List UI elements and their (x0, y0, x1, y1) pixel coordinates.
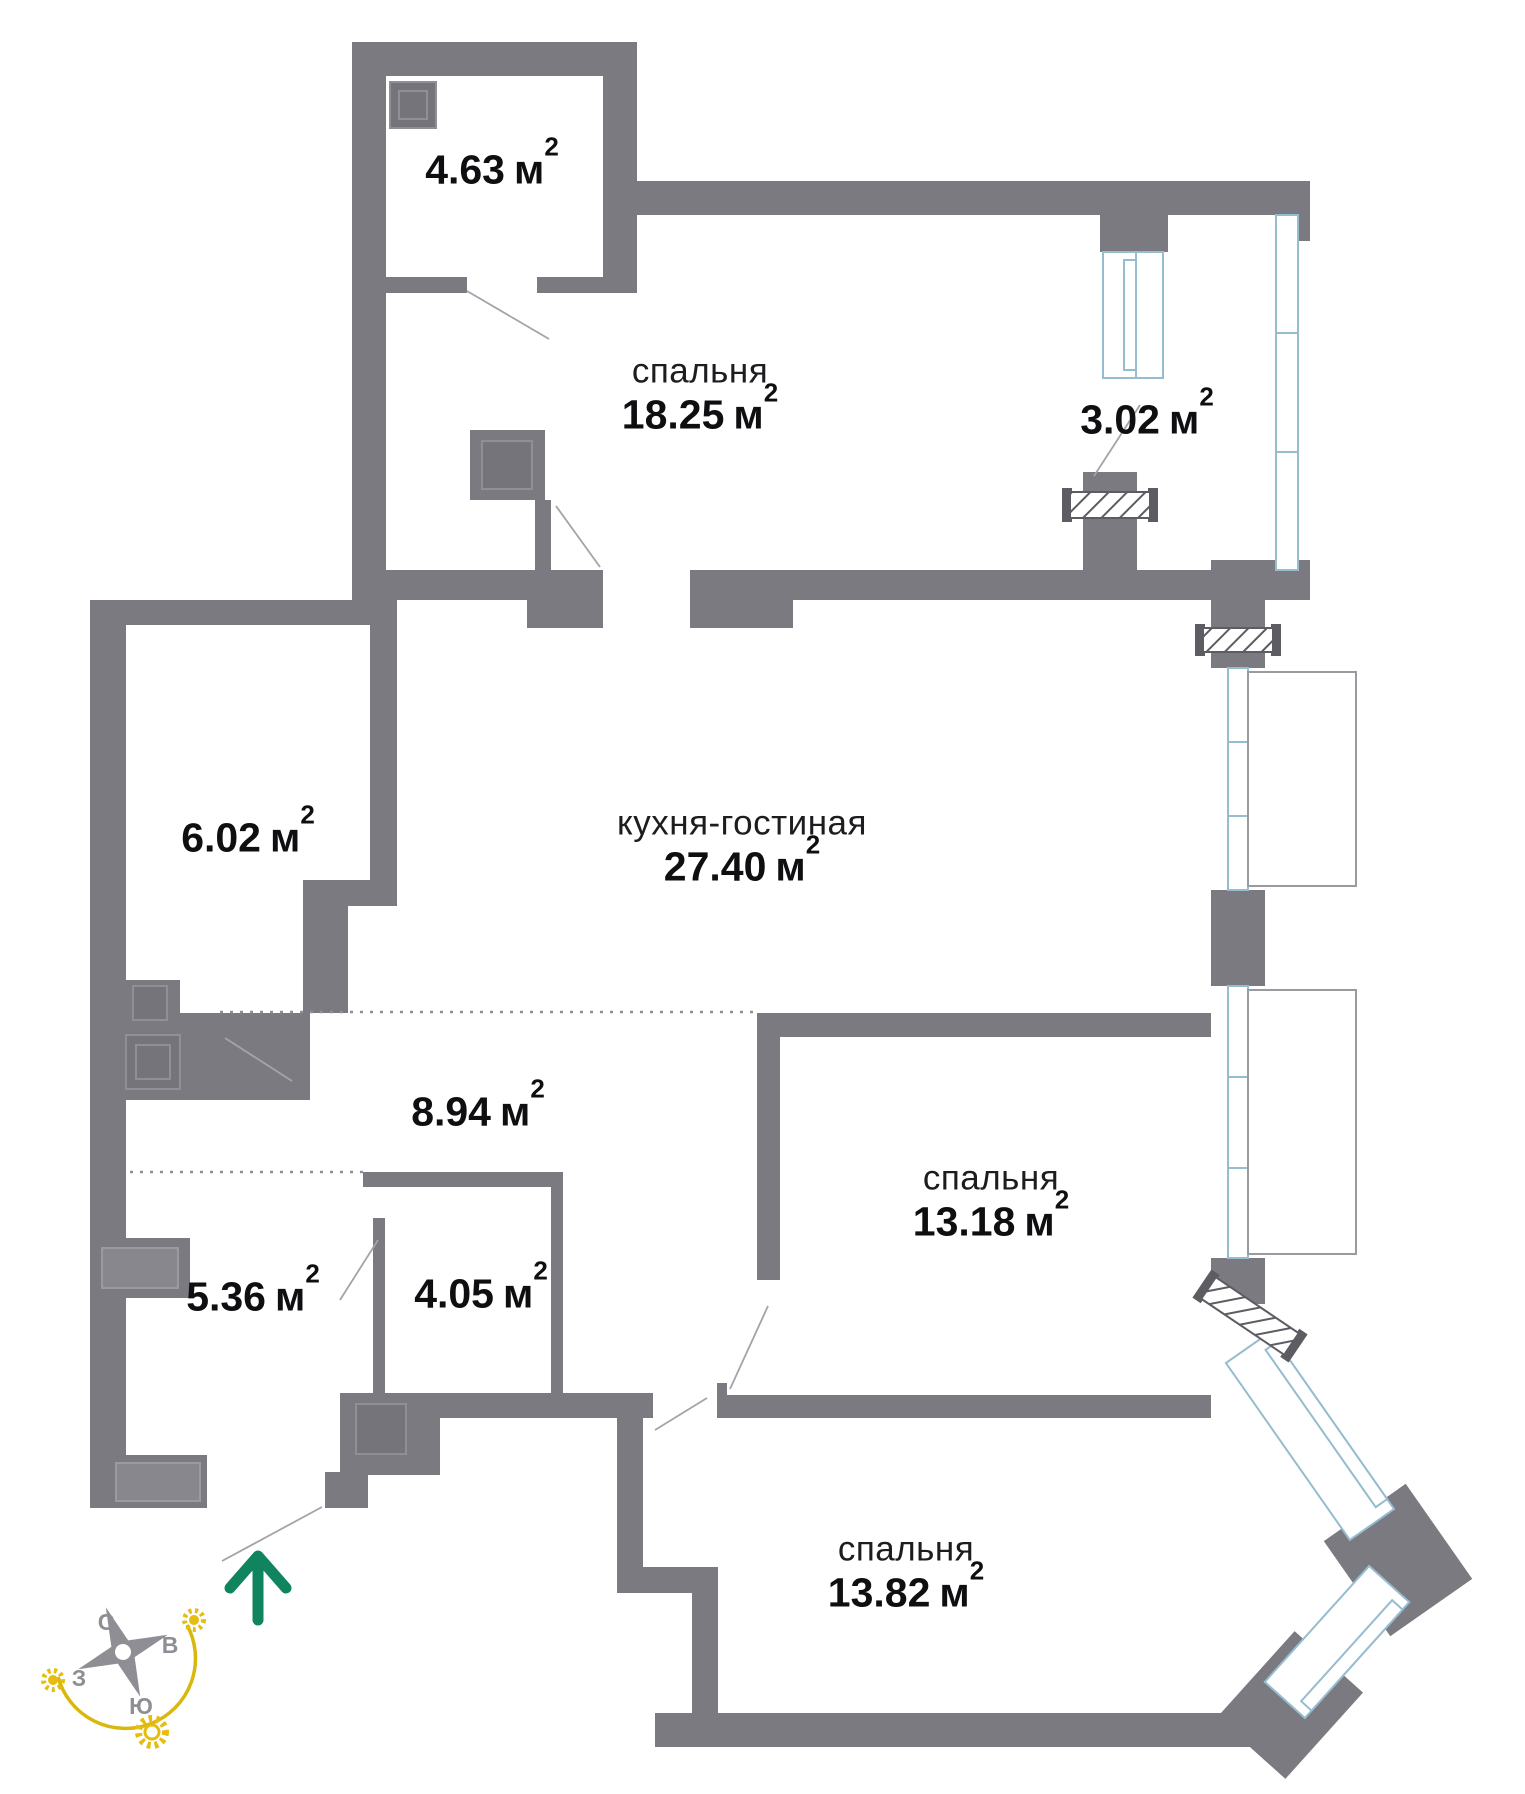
walls-layer (90, 42, 1472, 1779)
room-area: 5.36м2 (186, 1273, 320, 1320)
vent-hatch-1 (1062, 488, 1158, 522)
room-name: спальня (913, 1158, 1069, 1198)
floorplan-drawing: С В З Ю (0, 0, 1525, 1794)
room-label-bedroom-1825: спальня 18.25м2 (622, 351, 778, 438)
vent-hatch-2 (1195, 624, 1281, 656)
compass-south-label: Ю (129, 1693, 153, 1719)
room-label-storage-405: 4.05м2 (414, 1270, 548, 1317)
room-label-wardrobe-463: 4.63м2 (425, 146, 559, 193)
room-area: 8.94м2 (411, 1088, 545, 1135)
bedroom2-window (1228, 986, 1356, 1258)
compass-west-label: З (72, 1665, 86, 1691)
room-label-bedroom-1382: спальня 13.82м2 (828, 1529, 984, 1616)
compass-rose-icon: С В З Ю (44, 1590, 204, 1746)
room-area: 4.63м2 (425, 146, 559, 193)
room-name: спальня (828, 1529, 984, 1569)
room-area: 6.02м2 (181, 814, 315, 861)
room-name: спальня (622, 351, 778, 391)
room-name: кухня-гостиная (617, 803, 867, 843)
room-label-bath-602: 6.02м2 (181, 814, 315, 861)
room-area: 4.05м2 (414, 1270, 548, 1317)
room-label-hallway-894: 8.94м2 (411, 1088, 545, 1135)
room-label-kitchen-living-2740: кухня-гостиная 27.40м2 (617, 803, 867, 890)
room-area: 18.25м2 (622, 392, 778, 439)
entry-arrow-icon (230, 1556, 286, 1620)
room-area: 27.40м2 (617, 844, 867, 891)
balcony-glazing (1276, 215, 1298, 570)
room-label-balcony-302: 3.02м2 (1080, 396, 1214, 443)
bay-window-upper (1226, 1332, 1394, 1540)
room-area: 13.82м2 (828, 1570, 984, 1617)
compass-east-label: В (162, 1632, 179, 1658)
compass-north-label: С (98, 1609, 115, 1635)
floorplan-canvas: С В З Ю 4.63м2 спальня 18.25м2 3.02м2 6.… (0, 0, 1525, 1794)
sun-icon (185, 1611, 204, 1630)
room-area: 13.18м2 (913, 1199, 1069, 1246)
room-label-bedroom-1318: спальня 13.18м2 (913, 1158, 1069, 1245)
room-area: 3.02м2 (1080, 396, 1214, 443)
balcony-door-window (1103, 252, 1163, 378)
kitchen-window (1228, 668, 1356, 890)
room-label-hall-536: 5.36м2 (186, 1273, 320, 1320)
